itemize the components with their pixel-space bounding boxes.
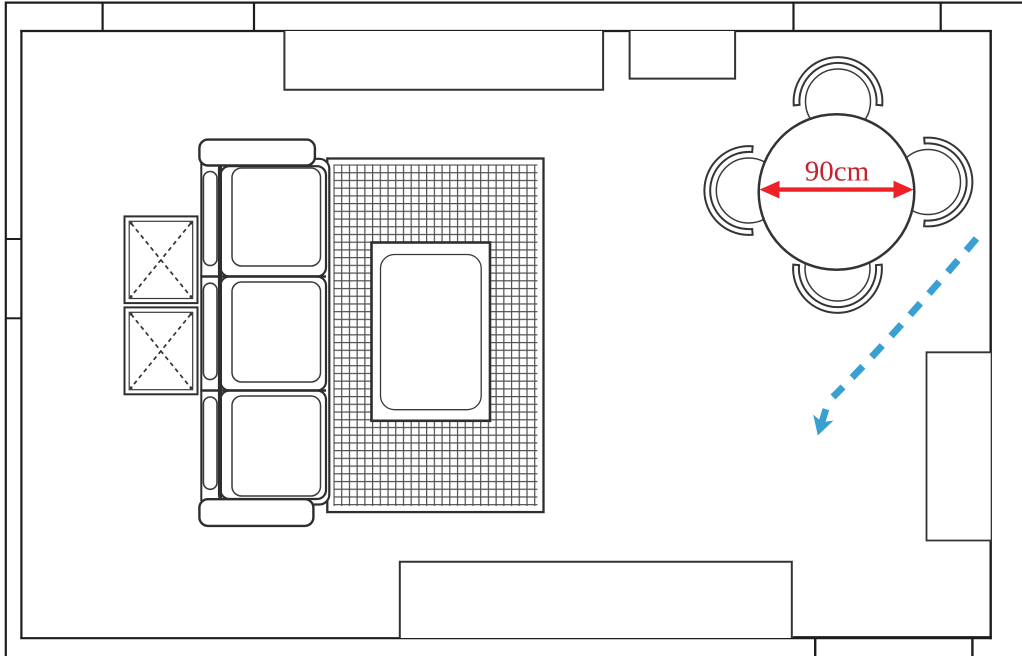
svg-text:90cm: 90cm: [805, 156, 870, 188]
